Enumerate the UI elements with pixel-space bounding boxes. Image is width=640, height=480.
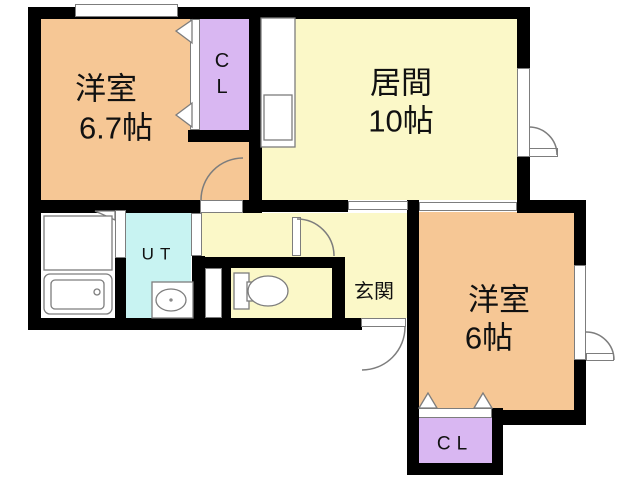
room-living-name: 居間 (370, 68, 432, 99)
closet-bottom-door-track (418, 408, 492, 418)
living-room2-sliding-door (419, 202, 517, 211)
wall-room1-living-divider (249, 7, 262, 213)
door-arc-front-door (362, 327, 405, 370)
wall-toilet-jamb (222, 268, 231, 318)
wall-room1-bottom-right (243, 200, 262, 213)
room-western-6-size: 6帖 (465, 323, 513, 354)
living-balcony-door (517, 68, 530, 157)
wall-room1-bottom-left (28, 200, 200, 213)
entrance-label: 玄関 (354, 282, 394, 302)
wall-closet-bottom-bottom (407, 463, 503, 475)
closet-top (200, 19, 249, 130)
wall-room2-bottom (492, 410, 586, 425)
living-balcony-door-leaf (529, 148, 558, 157)
wall-room2-left-divider (407, 200, 419, 475)
wall-living-right-lower (517, 157, 530, 205)
wall-toilet-top (192, 257, 345, 268)
room1-door-opening (200, 200, 243, 213)
wall-bath-utility (115, 258, 126, 330)
room2-balcony-door (574, 265, 586, 360)
closet-top-door-track (190, 19, 200, 130)
wall-living-right-upper (517, 7, 530, 68)
toilet-door (205, 268, 222, 318)
entrance-front-door-leaf (361, 318, 406, 327)
room-western-6-name: 洋室 (468, 285, 530, 316)
wall-left (28, 7, 41, 330)
utility-door (191, 213, 202, 256)
room-western-6-7-size: 6.7帖 (79, 113, 153, 144)
hall-entrance-door-leaf (292, 217, 301, 256)
wall-toilet-right (332, 257, 345, 330)
wall-room2-right-upper (574, 200, 586, 265)
closet-top-label-c: C (215, 51, 229, 71)
wall-living-bottom (262, 200, 348, 212)
closet-bottom-label: CL (437, 435, 473, 454)
room2-balcony-door-leaf (586, 353, 614, 361)
bath-door-opening (115, 210, 126, 258)
room-western-6-7-name: 洋室 (75, 74, 137, 105)
room-living-size: 10帖 (368, 106, 433, 137)
floor-plan: 洋室 6.7帖 C L 居間 10帖 UT 玄関 洋室 6帖 CL (0, 0, 640, 480)
closet-top-label-l: L (216, 77, 227, 97)
living-hall-sliding-door (348, 201, 408, 210)
utility-label: UT (142, 246, 177, 263)
window-top (75, 4, 178, 17)
bathroom (41, 213, 115, 318)
utility-room (126, 213, 191, 318)
